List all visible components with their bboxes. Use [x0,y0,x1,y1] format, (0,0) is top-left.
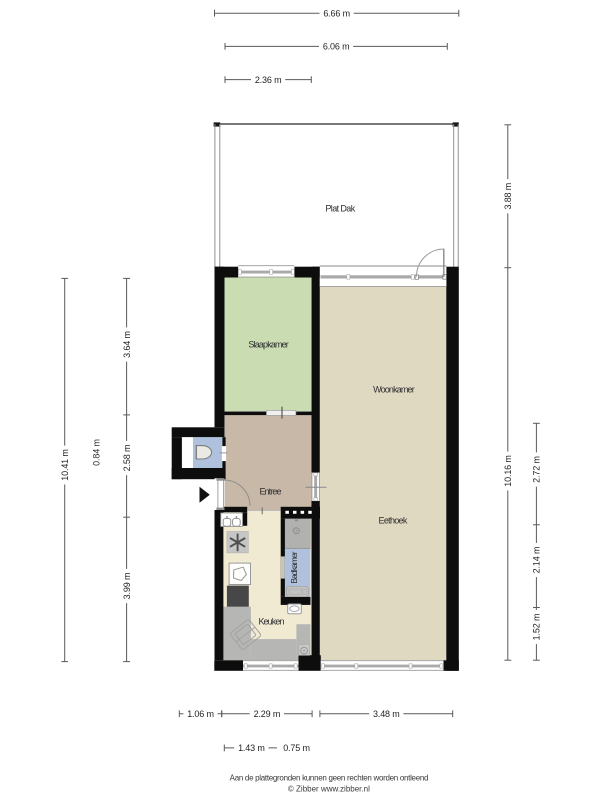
svg-text:1.43 m: 1.43 m [238,743,265,753]
svg-text:1.52 m: 1.52 m [532,614,542,641]
svg-text:2.36 m: 2.36 m [255,75,282,85]
svg-text:3.48 m: 3.48 m [373,709,400,719]
svg-text:Entree: Entree [259,486,281,496]
svg-text:3.99 m: 3.99 m [122,573,132,600]
svg-text:10.41 m: 10.41 m [60,449,70,480]
svg-text:Aan de plattegronden kunnen ge: Aan de plattegronden kunnen geen rechten… [230,773,428,782]
svg-text:2.29 m: 2.29 m [254,709,281,719]
svg-text:2.14 m: 2.14 m [532,547,542,574]
svg-text:1.06 m: 1.06 m [187,709,214,719]
svg-text:10.16 m: 10.16 m [503,455,513,486]
svg-text:6.06 m: 6.06 m [323,42,350,52]
svg-text:0.84 m: 0.84 m [91,439,101,466]
svg-text:Badkamer: Badkamer [289,551,299,583]
svg-text:Plat Dak: Plat Dak [325,204,355,214]
svg-text:Slaapkamer: Slaapkamer [248,339,288,349]
svg-text:2.72 m: 2.72 m [532,456,542,483]
svg-text:3.64 m: 3.64 m [122,331,132,358]
svg-text:Eethoek: Eethoek [379,515,408,525]
svg-text:2.58 m: 2.58 m [122,445,132,472]
svg-text:6.66 m: 6.66 m [323,8,350,18]
svg-text:Keuken: Keuken [258,616,284,626]
svg-text:3.88 m: 3.88 m [503,183,513,210]
svg-text:0.75 m: 0.75 m [283,743,310,753]
svg-text:Woonkamer: Woonkamer [373,385,415,395]
svg-text:© Zibber www.zibber.nl: © Zibber www.zibber.nl [288,784,370,793]
